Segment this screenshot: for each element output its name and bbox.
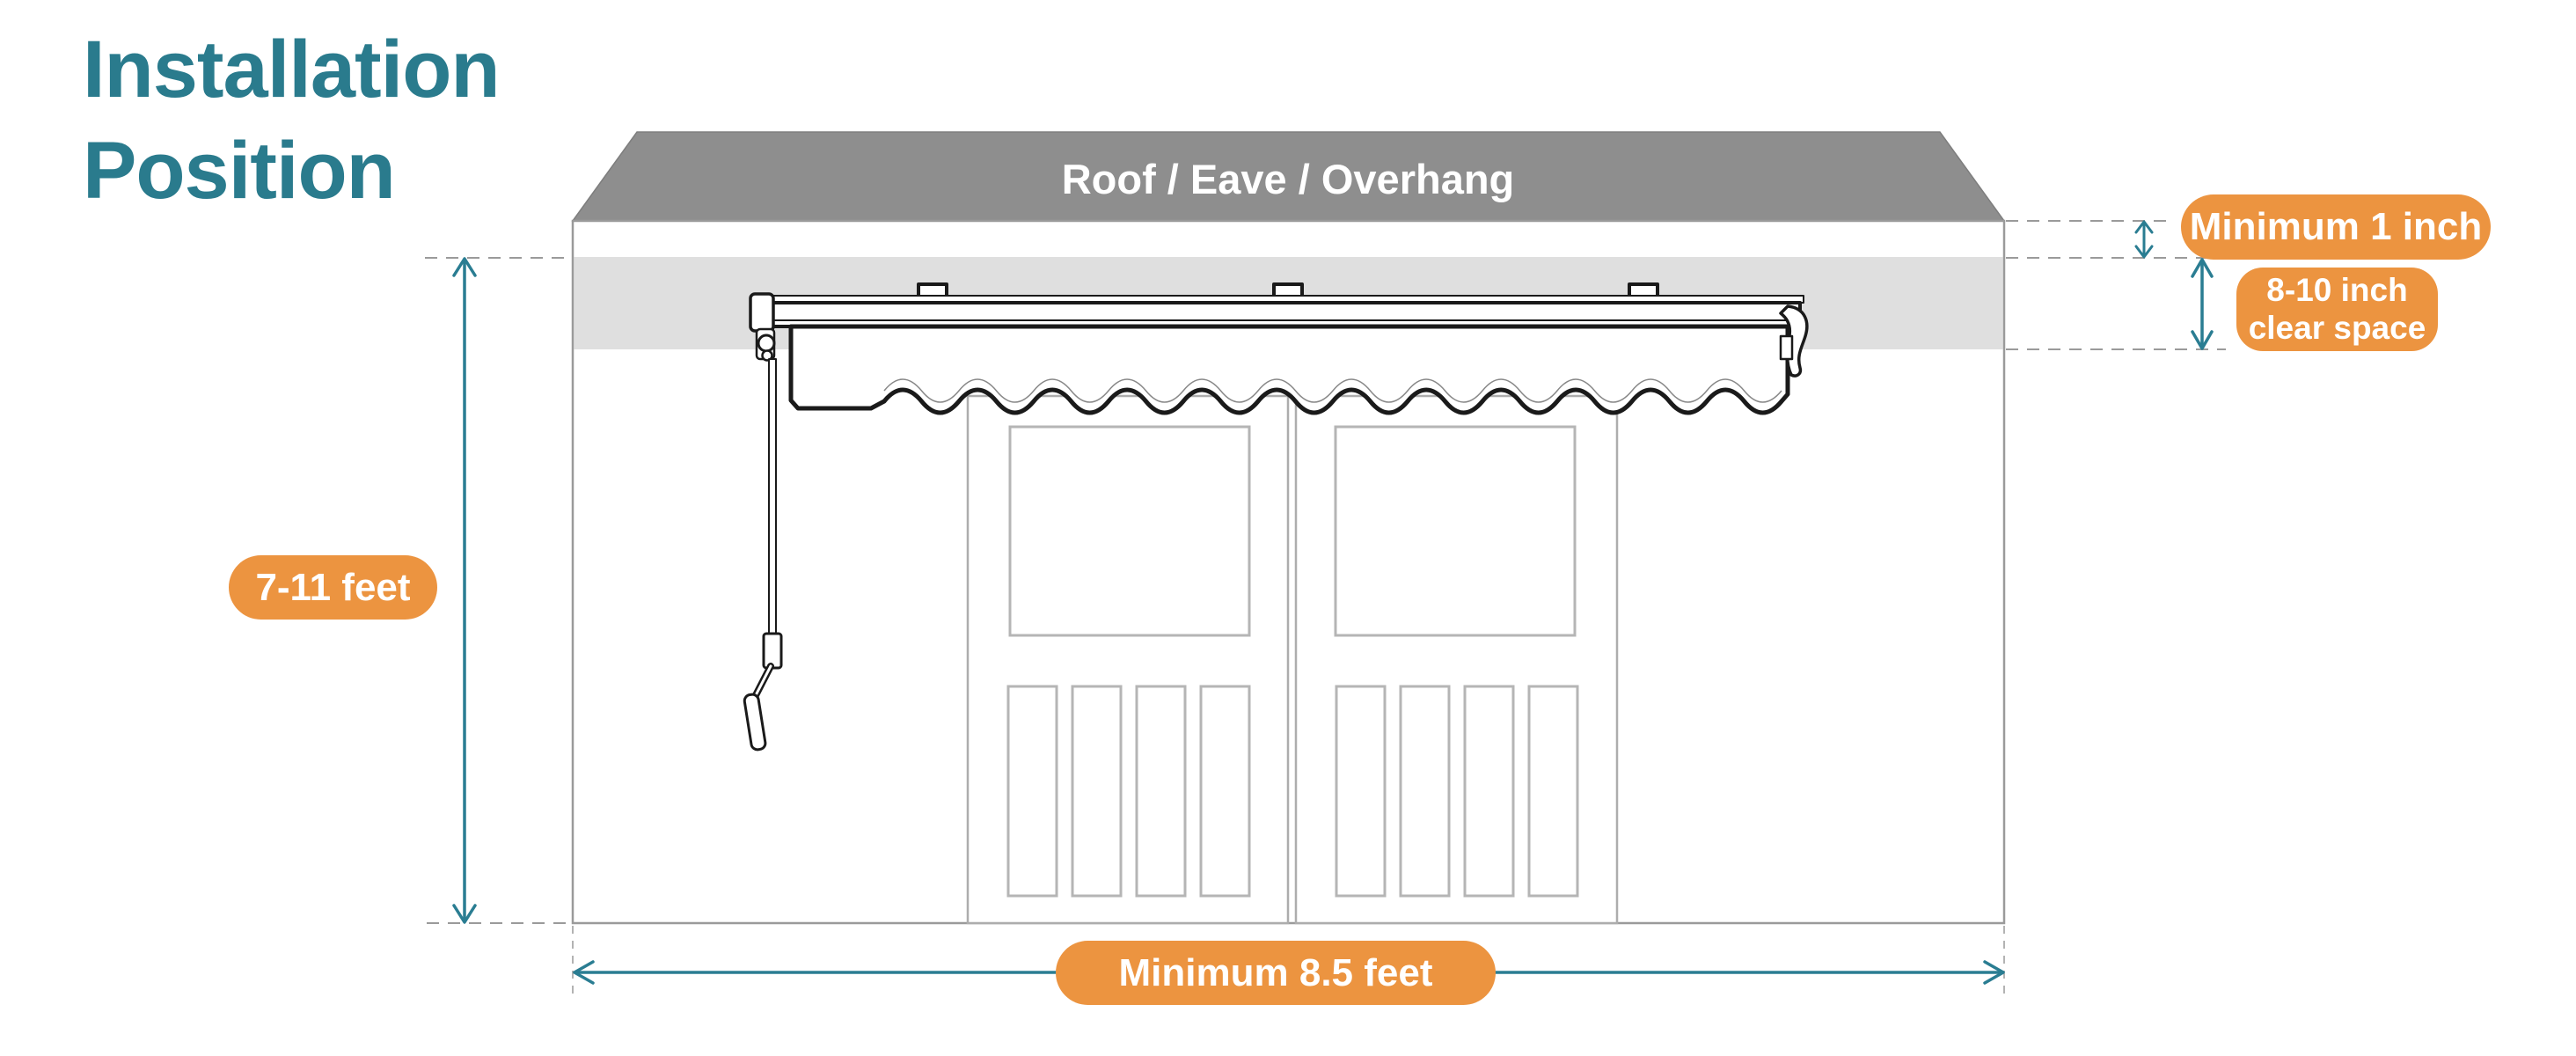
right-end-plate xyxy=(1781,336,1792,359)
door-right-window xyxy=(1336,427,1575,635)
crank-rod xyxy=(769,359,776,635)
clear-space-line2: clear space xyxy=(2249,310,2426,348)
door-left-window xyxy=(1010,427,1249,635)
page-title: Installation Position xyxy=(83,19,500,222)
page-title-line1: Installation xyxy=(83,19,500,121)
wall-height-label: 7-11 feet xyxy=(229,555,437,620)
roof-clearance-label: Minimum 1 inch xyxy=(2181,194,2491,260)
wall-height-value: 7-11 feet xyxy=(255,566,410,610)
crank-grip-joint xyxy=(764,634,781,668)
roof-label: Roof / Eave / Overhang xyxy=(1024,155,1552,202)
awning-roller-bar xyxy=(758,303,1800,326)
roof-clearance-value: Minimum 1 inch xyxy=(2190,205,2482,249)
clear-space-label: 8-10 inch clear space xyxy=(2236,268,2438,351)
clear-space-line1: 8-10 inch xyxy=(2266,272,2407,310)
installation-position-diagram: Installation Position Roof / Eave / Over… xyxy=(0,0,2576,1056)
wall-height-arrow xyxy=(454,259,475,922)
page-title-line2: Position xyxy=(83,121,500,222)
min-width-label: Minimum 8.5 feet xyxy=(1056,941,1496,1005)
roof-clearance-arrow xyxy=(2136,222,2152,257)
min-width-value: Minimum 8.5 feet xyxy=(1119,951,1433,995)
clear-space-arrow xyxy=(2192,260,2212,348)
